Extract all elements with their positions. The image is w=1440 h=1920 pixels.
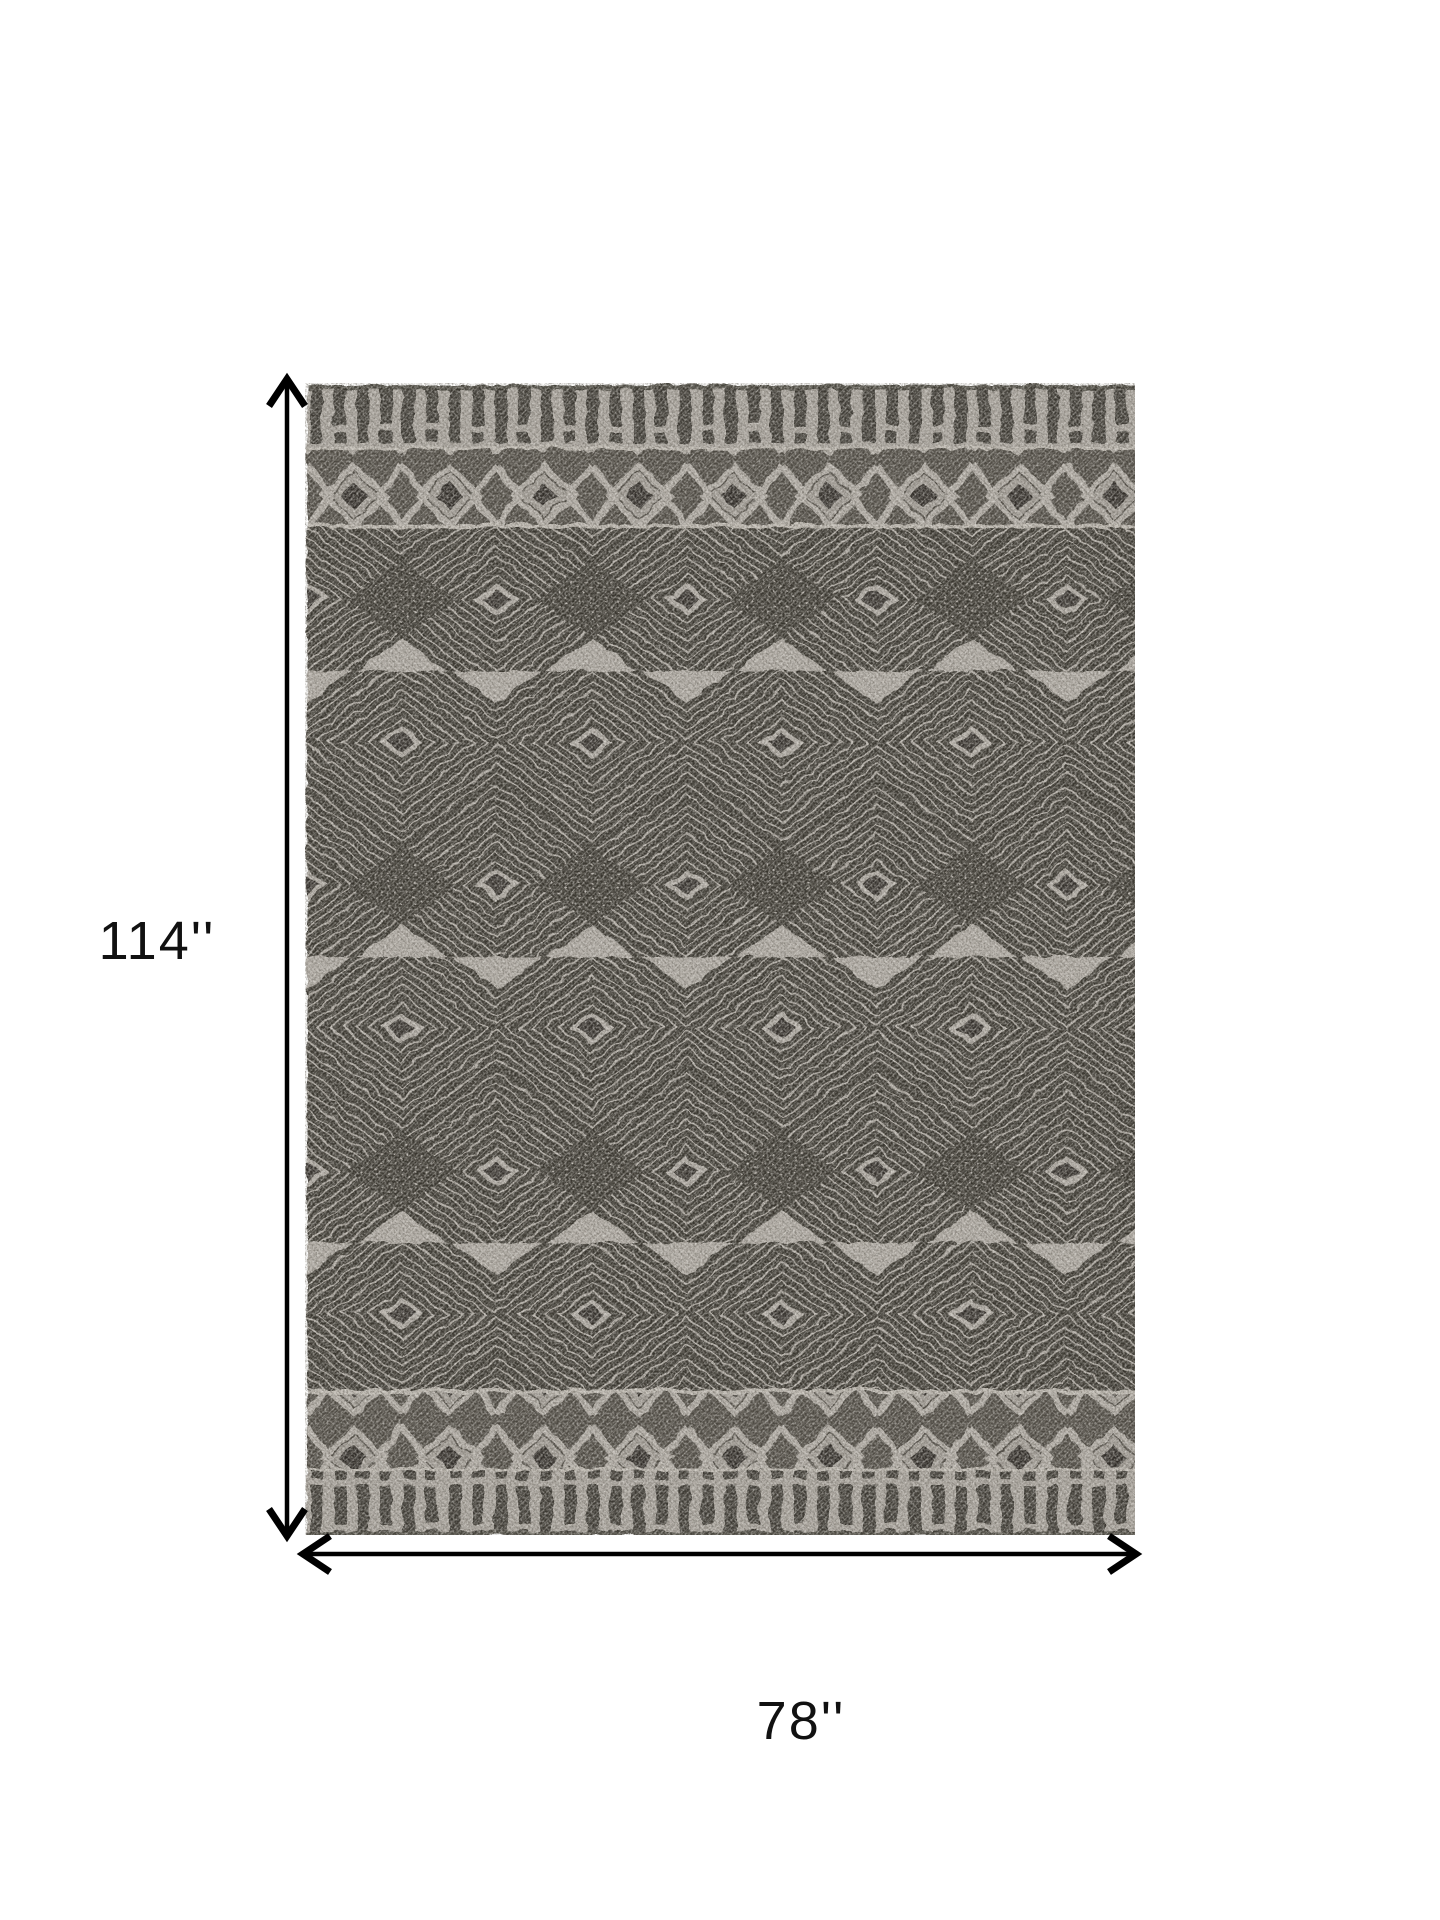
product-dimension-diagram: .ring{fill:none;stroke:#39362f;stroke-wi…	[0, 0, 1440, 1920]
width-dimension-label: 78''	[757, 1690, 846, 1752]
rug-graphic: .ring{fill:none;stroke:#39362f;stroke-wi…	[305, 383, 1135, 1535]
height-dimension-label: 114''	[99, 910, 216, 972]
rug-image: .ring{fill:none;stroke:#39362f;stroke-wi…	[305, 383, 1135, 1535]
width-arrow	[303, 1536, 1136, 1572]
height-arrow	[269, 379, 305, 1536]
